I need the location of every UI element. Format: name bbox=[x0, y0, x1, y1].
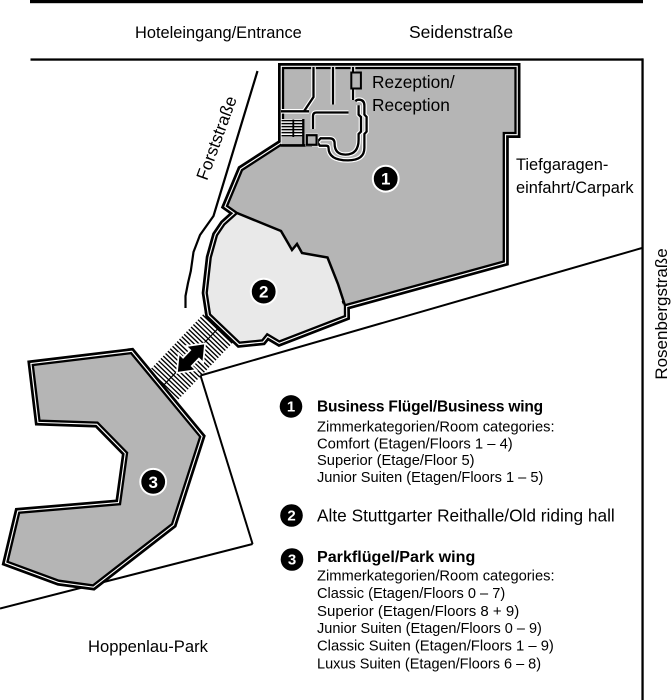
svg-text:1: 1 bbox=[381, 170, 390, 189]
svg-text:2: 2 bbox=[287, 508, 295, 525]
svg-text:Reception: Reception bbox=[372, 95, 450, 115]
svg-text:Comfort (Etagen/Floors 1 – 4): Comfort (Etagen/Floors 1 – 4) bbox=[317, 436, 513, 452]
svg-text:3: 3 bbox=[288, 552, 296, 569]
svg-text:1: 1 bbox=[287, 399, 295, 416]
svg-text:Forststraße: Forststraße bbox=[192, 93, 241, 182]
svg-text:Classic (Etagen/Floors 0 – 7): Classic (Etagen/Floors 0 – 7) bbox=[317, 586, 505, 602]
svg-text:Superior (Etagen/Floors 8 + 9): Superior (Etagen/Floors 8 + 9) bbox=[317, 603, 519, 620]
svg-text:Alte Stuttgarter Reithalle/Old: Alte Stuttgarter Reithalle/Old riding ha… bbox=[317, 505, 615, 525]
svg-text:3: 3 bbox=[148, 473, 157, 492]
svg-text:Rosenbergstraße: Rosenbergstraße bbox=[652, 248, 671, 379]
svg-text:Superior (Etage/Floor 5): Superior (Etage/Floor 5) bbox=[317, 453, 475, 469]
svg-text:Business Flügel/Business wing: Business Flügel/Business wing bbox=[317, 399, 543, 416]
svg-text:Junior Suiten (Etagen/Floors 0: Junior Suiten (Etagen/Floors 0 – 9) bbox=[317, 621, 542, 637]
svg-text:Zimmerkategorien/Room categori: Zimmerkategorien/Room categories: bbox=[317, 569, 555, 585]
svg-text:einfahrt/Carpark: einfahrt/Carpark bbox=[516, 179, 634, 197]
svg-text:Classic Suiten (Etagen/Floors: Classic Suiten (Etagen/Floors 1 – 9) bbox=[317, 638, 554, 654]
svg-text:Luxus Suiten (Etagen/Floors 6: Luxus Suiten (Etagen/Floors 6 – 8) bbox=[317, 656, 541, 672]
svg-text:Parkflügel/Park wing: Parkflügel/Park wing bbox=[317, 548, 475, 566]
svg-text:Tiefgaragen-: Tiefgaragen- bbox=[516, 156, 608, 174]
svg-text:Hoteleingang/Entrance: Hoteleingang/Entrance bbox=[135, 24, 302, 42]
svg-text:Hoppenlau-Park: Hoppenlau-Park bbox=[88, 637, 209, 656]
svg-text:Rezeption/: Rezeption/ bbox=[372, 72, 455, 92]
svg-text:Junior Suiten (Etagen/Floors 1: Junior Suiten (Etagen/Floors 1 – 5) bbox=[317, 470, 543, 486]
svg-text:2: 2 bbox=[259, 283, 268, 302]
svg-text:Zimmerkategorien/Room categori: Zimmerkategorien/Room categories: bbox=[317, 420, 555, 436]
svg-text:Seidenstraße: Seidenstraße bbox=[409, 22, 513, 42]
